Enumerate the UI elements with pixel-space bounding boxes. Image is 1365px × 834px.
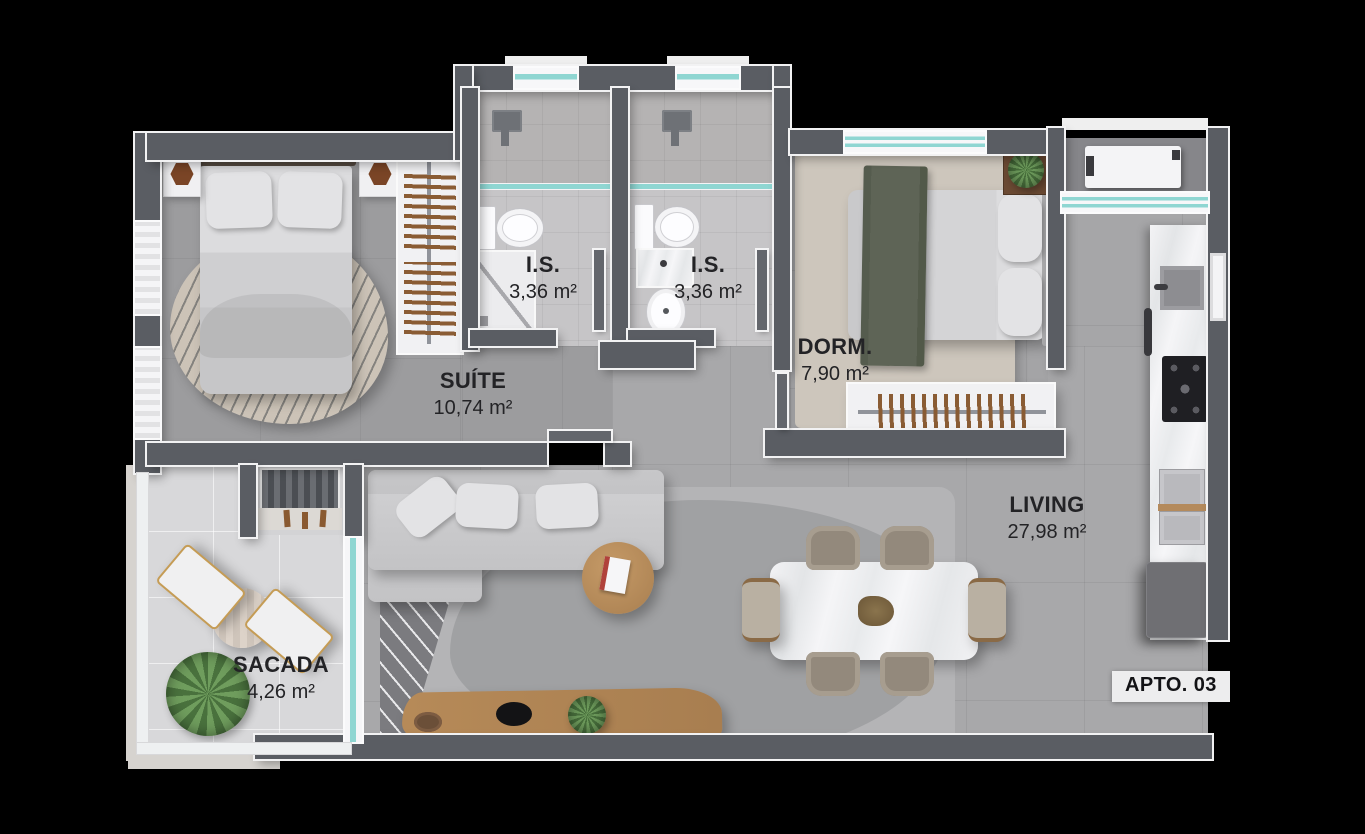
room-area-suite: 10,74 m² (393, 396, 553, 420)
exterior-ledge-left (126, 465, 136, 761)
grill-shelf (258, 508, 342, 530)
toilet-1-bowl (496, 208, 544, 248)
window-left-lower (135, 348, 160, 438)
window-left-upper (135, 222, 160, 314)
shower-drain-1 (478, 316, 488, 326)
wall-balcony-divider-top (345, 465, 362, 540)
wall-bath1-bottom (470, 330, 556, 346)
vanity-drain (663, 308, 669, 314)
fridge (1146, 562, 1208, 638)
tv-unit (496, 702, 532, 726)
room-area-dorm: 7,90 m² (768, 362, 902, 386)
shower-stem-2 (671, 130, 679, 146)
window-bath1 (515, 68, 577, 88)
dining-chair-bottom-1 (806, 652, 860, 696)
room-label-is1: I.S. 3,36 m² (483, 252, 603, 304)
skewer-handle-1 (283, 510, 290, 527)
cutting-board (1158, 504, 1206, 511)
shower-stem-1 (501, 130, 509, 146)
console-plant (568, 696, 606, 734)
window-kitchen (1062, 193, 1208, 212)
side-stool (414, 712, 442, 732)
dorm-pillow-top (998, 194, 1042, 262)
shower-head-icon-1 (492, 110, 522, 132)
suite-bed-duvet-fold (200, 294, 352, 358)
room-area-sacada: 4,26 m² (199, 680, 363, 704)
wall-suite-bottom (147, 443, 547, 465)
sofa-pillow-middle (455, 482, 519, 529)
door-suite (549, 431, 611, 441)
laundry-basin-lower (1160, 512, 1204, 544)
dorm-pillow-bottom (998, 268, 1042, 336)
dining-chair-top-1 (806, 526, 860, 570)
suite-pillow-right (277, 171, 343, 229)
kitchen-faucet (1154, 284, 1168, 290)
ac-condenser-unit (1085, 146, 1181, 188)
dining-centerpiece (858, 596, 894, 626)
suite-pillow-left (205, 171, 273, 229)
wall-bath2-dorm-divider (774, 88, 790, 370)
grill (262, 470, 338, 508)
suite-wardrobe-hangers-top (404, 170, 456, 254)
wall-top-suite (147, 133, 462, 160)
shower-glass-2 (628, 184, 774, 189)
unit-badge: APTO. 03 (1112, 671, 1230, 702)
cooktop (1162, 356, 1208, 422)
laundry-basin-upper (1160, 470, 1204, 508)
ac-condenser-cap-left (1086, 156, 1094, 176)
window-dorm (845, 132, 985, 152)
room-label-living: LIVING 27,98 m² (963, 492, 1131, 544)
room-label-dorm: DORM. 7,90 m² (768, 334, 902, 386)
dorm-wardrobe-hangers (872, 394, 1030, 430)
suite-wardrobe-hangers-bottom (404, 262, 456, 340)
room-name-living: LIVING (963, 492, 1131, 518)
exterior-sill-kitchen (1062, 118, 1208, 130)
dining-chair-top-2 (880, 526, 934, 570)
room-name-is2: I.S. (645, 252, 771, 278)
wall-dorm-bottom (765, 430, 1064, 456)
skewer-handle-3 (319, 510, 326, 527)
wall-suite-bath-divider (462, 88, 478, 350)
room-name-suite: SUÍTE (393, 368, 553, 394)
balcony-railing-left (137, 473, 148, 753)
wall-grill-niche-left (240, 465, 256, 537)
wall-bottom (255, 735, 1212, 759)
room-label-sacada: SACADA 4,26 m² (199, 652, 363, 704)
room-area-living: 27,98 m² (963, 520, 1131, 544)
dorm-plant (1008, 152, 1044, 188)
sofa-pillow-right (535, 482, 599, 529)
toilet-2-tank (634, 204, 654, 250)
shower-glass-1 (470, 184, 612, 189)
room-area-is2: 3,36 m² (645, 280, 771, 304)
wall-top-bathrooms (455, 66, 790, 90)
toilet-2-bowl (654, 206, 700, 248)
balcony-glass-door (345, 538, 362, 742)
toilet-1-tank (476, 206, 496, 250)
room-name-sacada: SACADA (199, 652, 363, 678)
window-right (1210, 253, 1226, 321)
room-name-is1: I.S. (483, 252, 603, 278)
shower-head-icon-2 (662, 110, 692, 132)
dining-armchair-left (742, 578, 780, 642)
room-label-is2: I.S. 3,36 m² (645, 252, 771, 304)
wall-bathroom-divider (612, 88, 628, 346)
room-area-is1: 3,36 m² (483, 280, 603, 304)
wall-right (1208, 128, 1228, 640)
wall-dorm-kitchen-divider (1048, 128, 1064, 368)
window-bath2 (677, 68, 739, 88)
wall-hall-stub (600, 342, 694, 368)
skewer-handle-2 (302, 512, 308, 529)
room-name-dorm: DORM. (768, 334, 902, 360)
floor-plan: SUÍTE 10,74 m² I.S. 3,36 m² I.S. 3,36 m²… (0, 0, 1365, 834)
ac-condenser-cap-right (1172, 150, 1180, 160)
balcony-railing-bottom (137, 743, 351, 754)
bathroom1-shower-floor (470, 88, 612, 188)
bathroom2-shower-floor (628, 88, 774, 188)
oven-handle (1144, 308, 1152, 356)
dining-armchair-right (968, 578, 1006, 642)
room-label-suite: SUÍTE 10,74 m² (393, 368, 553, 420)
wall-suite-bottom-stub (605, 443, 630, 465)
dining-chair-bottom-2 (880, 652, 934, 696)
